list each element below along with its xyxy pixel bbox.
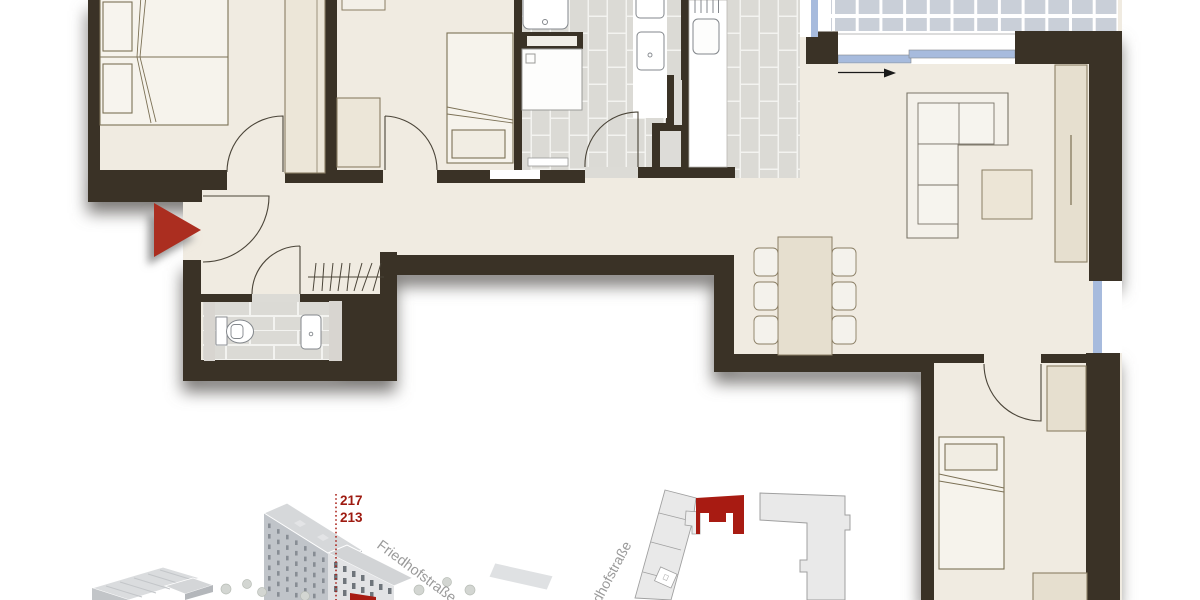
svg-text:213: 213 [340, 510, 363, 525]
svg-text:217: 217 [340, 493, 363, 508]
